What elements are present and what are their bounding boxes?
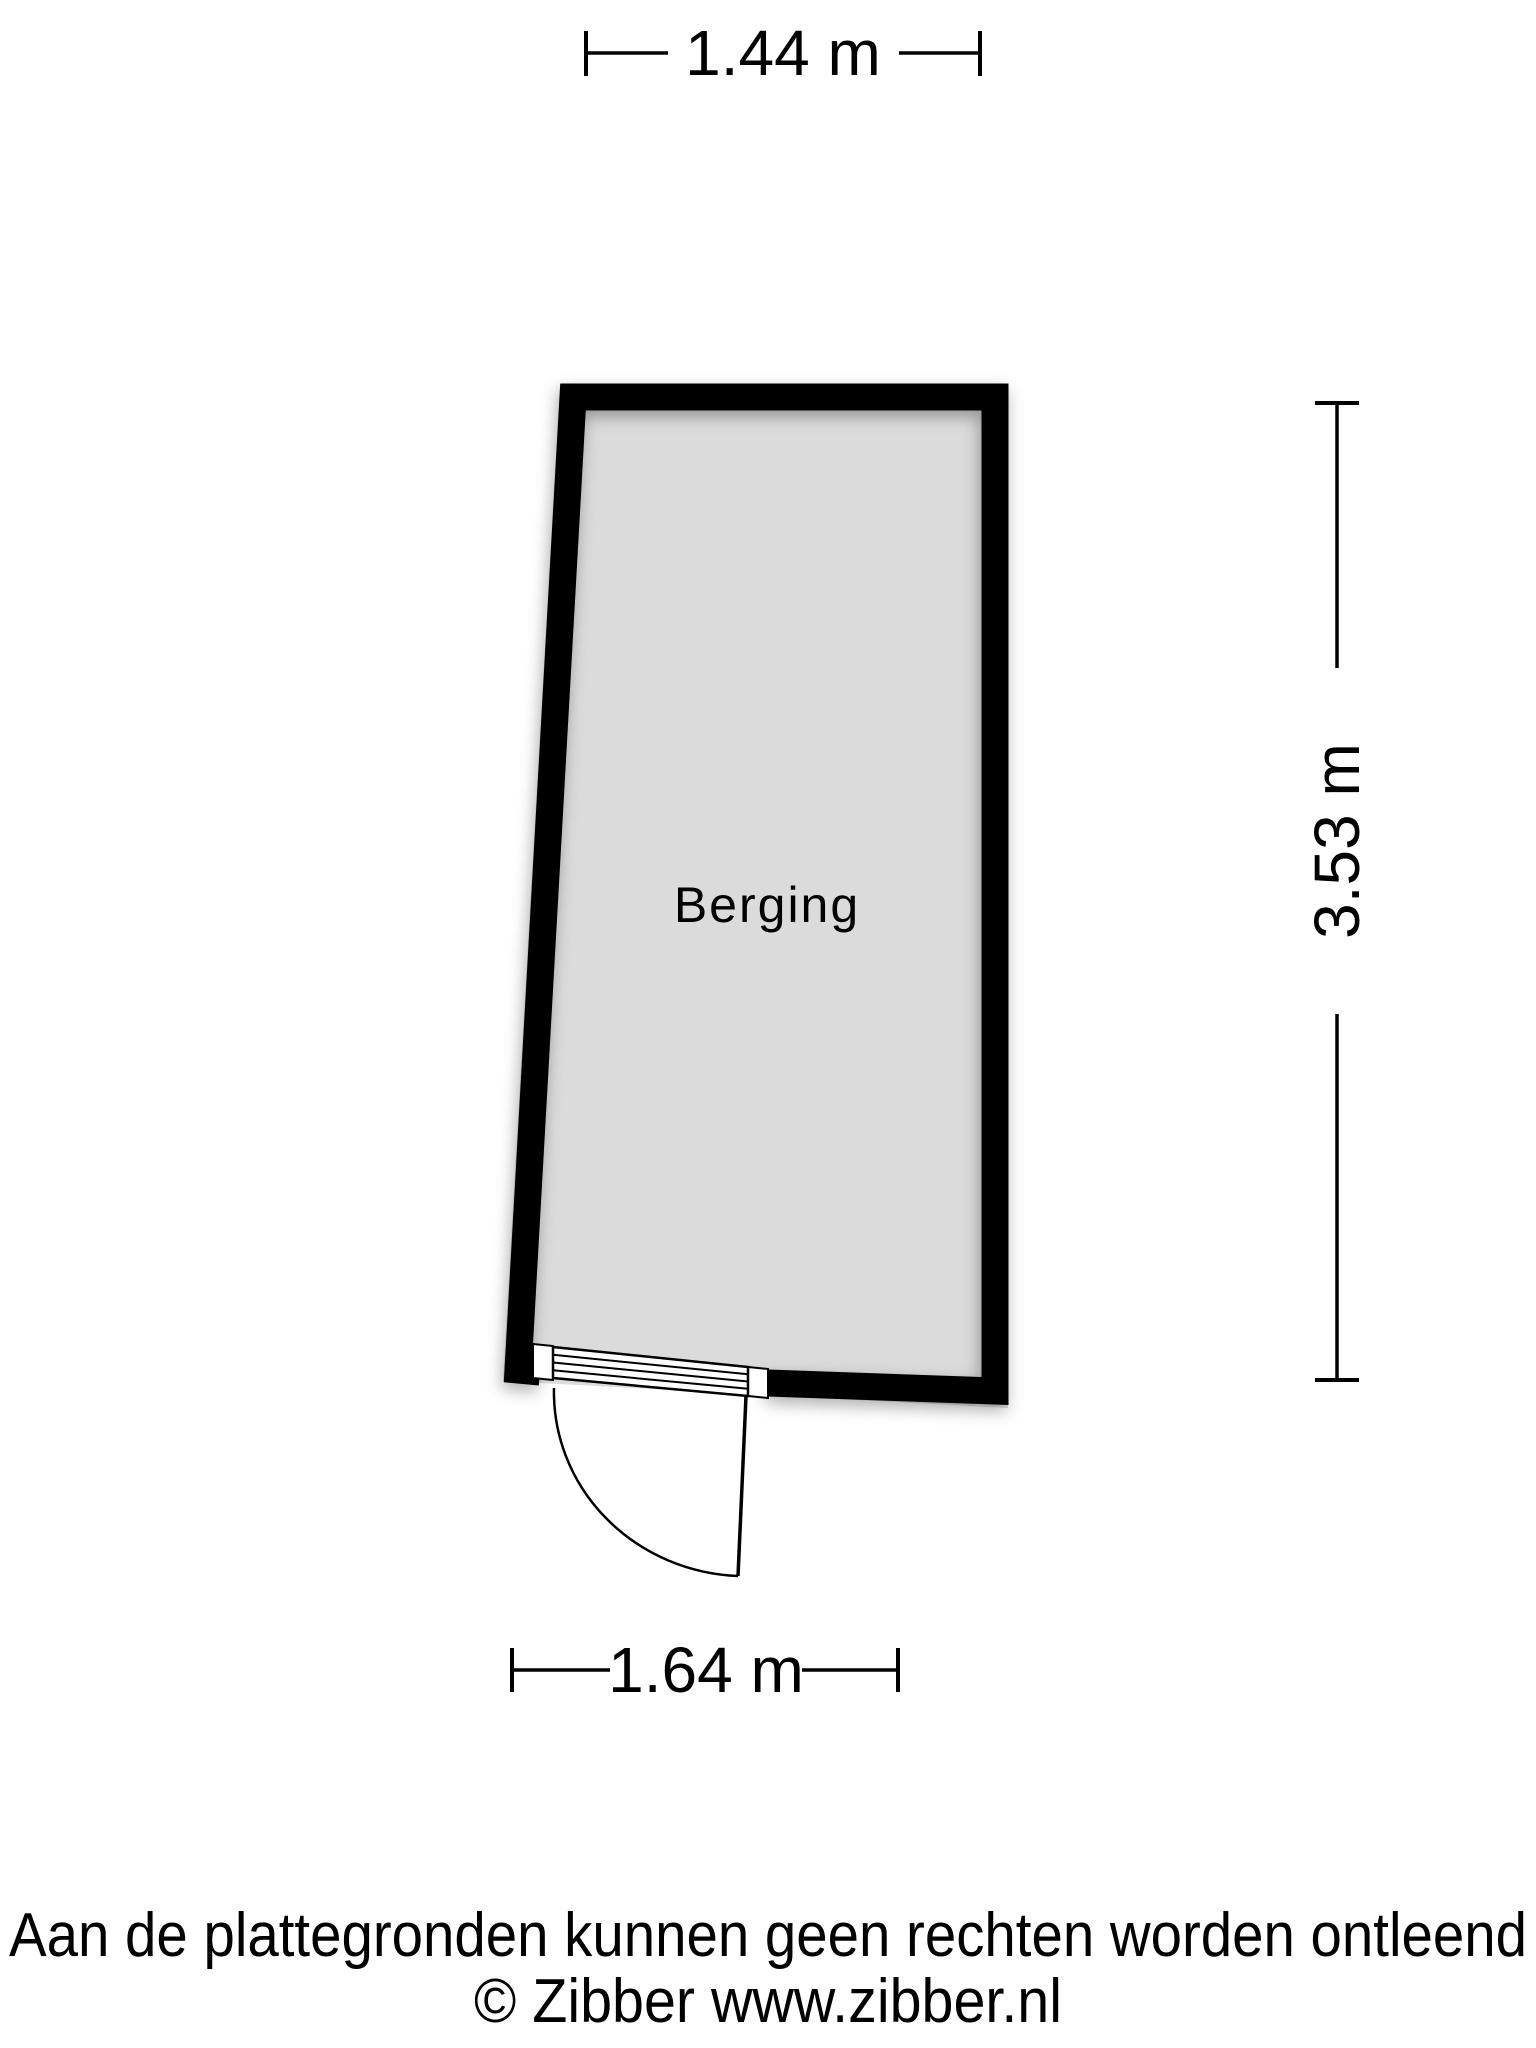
- door-leaf: [738, 1396, 746, 1576]
- room-label: Berging: [674, 877, 860, 933]
- door-jamb-left: [533, 1344, 553, 1380]
- floorplan-page: Berging 1.44 m 3.53 m 1.64 m Aan de plat…: [0, 0, 1536, 2048]
- footer-copyright: © Zibber www.zibber.nl: [474, 1967, 1062, 2036]
- door-jamb-right: [748, 1367, 768, 1398]
- footer-disclaimer: Aan de plattegronden kunnen geen rechten…: [9, 1901, 1527, 1970]
- dimension-top-label: 1.44 m: [685, 17, 881, 89]
- door-swing-arc: [554, 1388, 738, 1576]
- door: [533, 1344, 768, 1576]
- floorplan-canvas: Berging 1.44 m 3.53 m 1.64 m Aan de plat…: [0, 0, 1536, 2048]
- dimension-right-label: 3.53 m: [1301, 743, 1373, 939]
- dimension-bottom-label: 1.64 m: [608, 1634, 804, 1706]
